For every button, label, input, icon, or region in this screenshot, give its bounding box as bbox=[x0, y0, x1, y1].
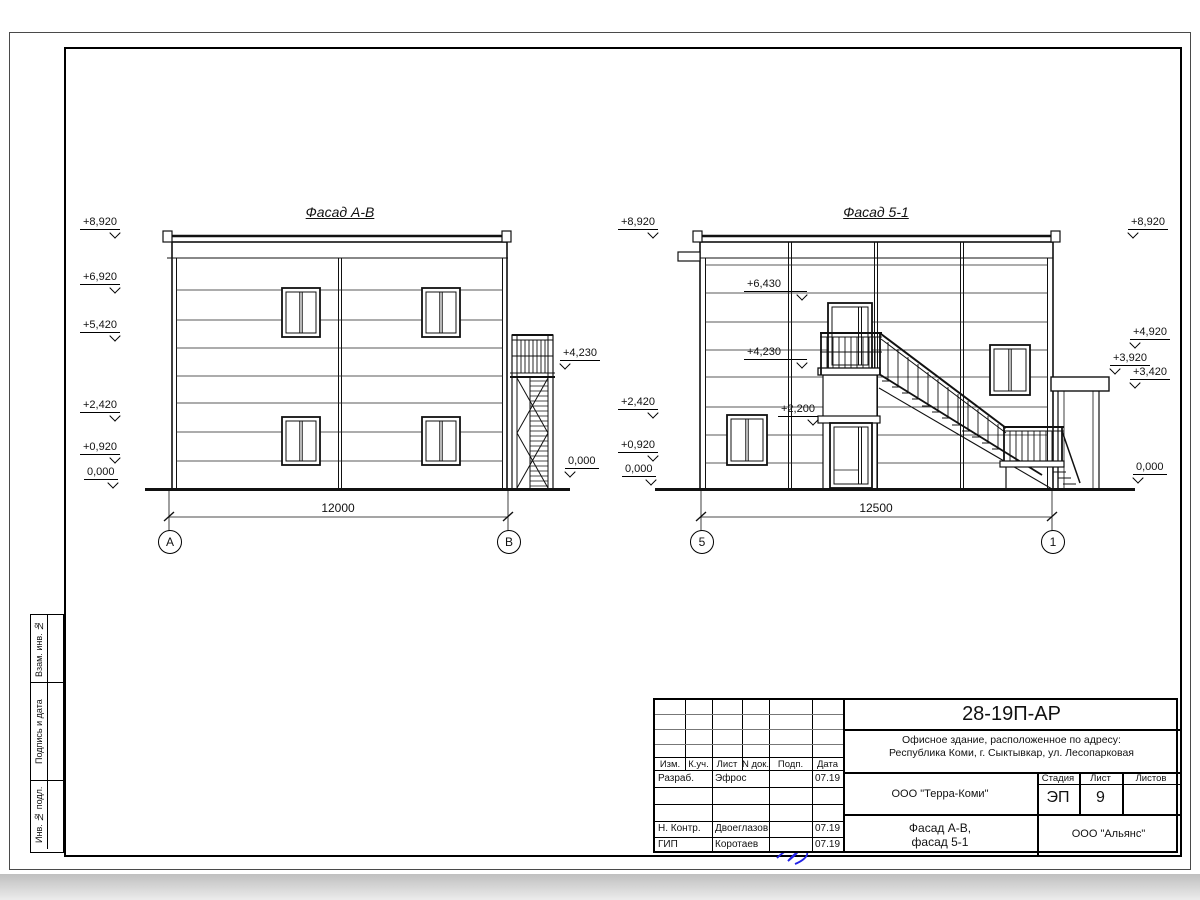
title-block: Изм. К.уч. Лист N док. Подп. Дата Разраб… bbox=[653, 698, 1178, 853]
axis-bubble: А bbox=[158, 530, 182, 554]
elevation-mark: +4,920 bbox=[1130, 327, 1170, 340]
grid-line bbox=[655, 757, 843, 758]
grid-line bbox=[655, 744, 843, 745]
grid-line bbox=[655, 714, 843, 715]
sheet-number: 9 bbox=[1079, 788, 1122, 808]
divider bbox=[47, 683, 48, 780]
attr-cell: Инв. № подл. bbox=[31, 781, 63, 849]
design-org: ООО "Терра-Коми" bbox=[843, 788, 1037, 801]
document-number: 28-19П-АР bbox=[843, 701, 1180, 727]
facade-ab-stair-tower bbox=[510, 335, 555, 489]
stamp-col-kuch: К.уч. bbox=[685, 759, 712, 771]
axis-bubble: 5 bbox=[690, 530, 714, 554]
stamp-role: Разраб. bbox=[658, 773, 711, 785]
elevation-mark: 0,000 bbox=[565, 456, 599, 469]
elevation-mark: +0,920 bbox=[80, 442, 120, 455]
elevation-mark: +8,920 bbox=[1128, 217, 1168, 230]
elevation-mark: 0,000 bbox=[84, 467, 118, 480]
stamp-col-izm: Изм. bbox=[655, 759, 685, 771]
elevation-mark: +6,430 bbox=[744, 279, 807, 292]
elevation-mark: +3,420 bbox=[1130, 367, 1170, 380]
elevation-mark: +2,420 bbox=[80, 400, 120, 413]
stamp-role: Н. Контр. bbox=[658, 823, 711, 835]
elevation-mark: 0,000 bbox=[622, 464, 656, 477]
drawing-sheet: Фасад А-В Фасад 5-1 +8,920 +6,920 +5,420… bbox=[0, 0, 1200, 900]
elevation-mark: +5,420 bbox=[80, 320, 120, 333]
stamp-date: 07.19 bbox=[812, 839, 843, 851]
stamp-role: ГИП bbox=[658, 839, 711, 851]
elevation-mark: +0,920 bbox=[618, 440, 658, 453]
object-description-line1: Офисное здание, расположенное по адресу: bbox=[843, 734, 1180, 747]
elevation-mark: +4,230 bbox=[744, 347, 807, 360]
dimension-value: 12500 bbox=[846, 501, 906, 515]
sheet-label: Лист bbox=[1079, 773, 1122, 785]
facade-ab-title: Фасад А-В bbox=[280, 204, 400, 220]
stamp-col-data: Дата bbox=[812, 759, 843, 771]
divider bbox=[47, 781, 48, 849]
elevation-mark: +3,920 bbox=[1110, 353, 1150, 366]
grid-line bbox=[655, 729, 843, 730]
attr-cell: Подпись и дата bbox=[31, 683, 63, 781]
object-description-line2: Республика Коми, г. Сыктывкар, ул. Лесоп… bbox=[843, 747, 1180, 760]
sheets-label: Листов bbox=[1122, 773, 1180, 785]
attr-label: Взам. инв. № bbox=[31, 615, 47, 682]
grid-line bbox=[712, 700, 713, 851]
attr-label: Подпись и дата bbox=[31, 683, 47, 780]
facade-51-title: Фасад 5-1 bbox=[816, 204, 936, 220]
divider bbox=[47, 615, 48, 682]
stamp-date: 07.19 bbox=[812, 823, 843, 835]
grid-line bbox=[655, 837, 843, 838]
stamp-col-ndok: N док. bbox=[740, 759, 771, 771]
stage-label: Стадия bbox=[1037, 773, 1079, 785]
stamp-date: 07.19 bbox=[812, 773, 843, 785]
grid-line bbox=[655, 821, 843, 822]
facade-ab-drawing bbox=[145, 231, 570, 531]
grid-line bbox=[655, 787, 843, 788]
stamp-name: Эфрос bbox=[715, 773, 768, 785]
elevation-mark: +6,920 bbox=[80, 272, 120, 285]
drawing-title-line2: фасад 5-1 bbox=[843, 836, 1037, 849]
elevation-mark: +8,920 bbox=[80, 217, 120, 230]
axis-bubble: В bbox=[497, 530, 521, 554]
axis-bubble: 1 bbox=[1041, 530, 1065, 554]
facade-51-drawing bbox=[655, 231, 1135, 531]
elevation-mark: 0,000 bbox=[1133, 462, 1167, 475]
stamp-name: Двоеглазов bbox=[715, 823, 771, 835]
facade-51-doors bbox=[818, 303, 880, 489]
grid-line bbox=[843, 814, 1180, 816]
elevation-mark: +4,230 bbox=[560, 348, 600, 361]
build-org: ООО "Альянс" bbox=[1037, 828, 1180, 841]
dimension-value: 12000 bbox=[308, 501, 368, 515]
elevation-mark: +8,920 bbox=[618, 217, 658, 230]
drawing-title-line1: Фасад А-В, bbox=[843, 822, 1037, 835]
elevation-mark: +2,420 bbox=[618, 397, 658, 410]
stamp-col-podp: Подп. bbox=[769, 759, 812, 771]
stamp-name: Коротаев bbox=[715, 839, 771, 851]
attr-label: Инв. № подл. bbox=[31, 781, 47, 849]
elevation-mark: +2,200 bbox=[778, 404, 818, 417]
attr-cell: Взам. инв. № bbox=[31, 615, 63, 683]
margin-attribute-strip: Взам. инв. № Подпись и дата Инв. № подл. bbox=[30, 614, 64, 853]
stamp-col-list: Лист bbox=[712, 759, 742, 771]
stage-value: ЭП bbox=[1037, 788, 1079, 808]
grid-line bbox=[843, 729, 1180, 731]
page-edge-shadow bbox=[0, 874, 1200, 900]
grid-line bbox=[655, 804, 843, 805]
